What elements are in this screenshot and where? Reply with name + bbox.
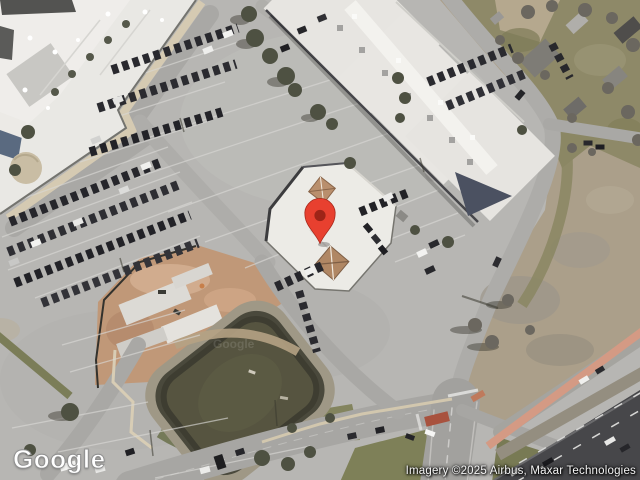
tile-watermark: Google [213,337,255,351]
satellite-map[interactable]: Google [0,0,640,480]
google-logo[interactable]: Google [13,444,106,475]
imagery-attribution: Imagery ©2025 Airbus, Maxar Technologies [406,465,636,477]
map-viewport[interactable]: Google [0,0,640,480]
